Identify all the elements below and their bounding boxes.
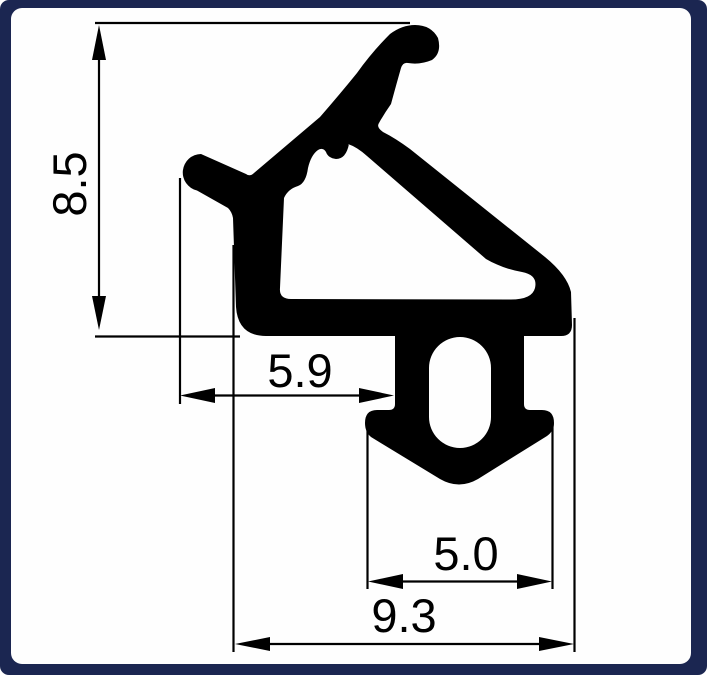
svg-text:5.9: 5.9 — [267, 344, 332, 397]
svg-text:8.5: 8.5 — [43, 151, 96, 216]
svg-text:5.0: 5.0 — [433, 527, 498, 580]
svg-text:9.3: 9.3 — [371, 589, 436, 642]
